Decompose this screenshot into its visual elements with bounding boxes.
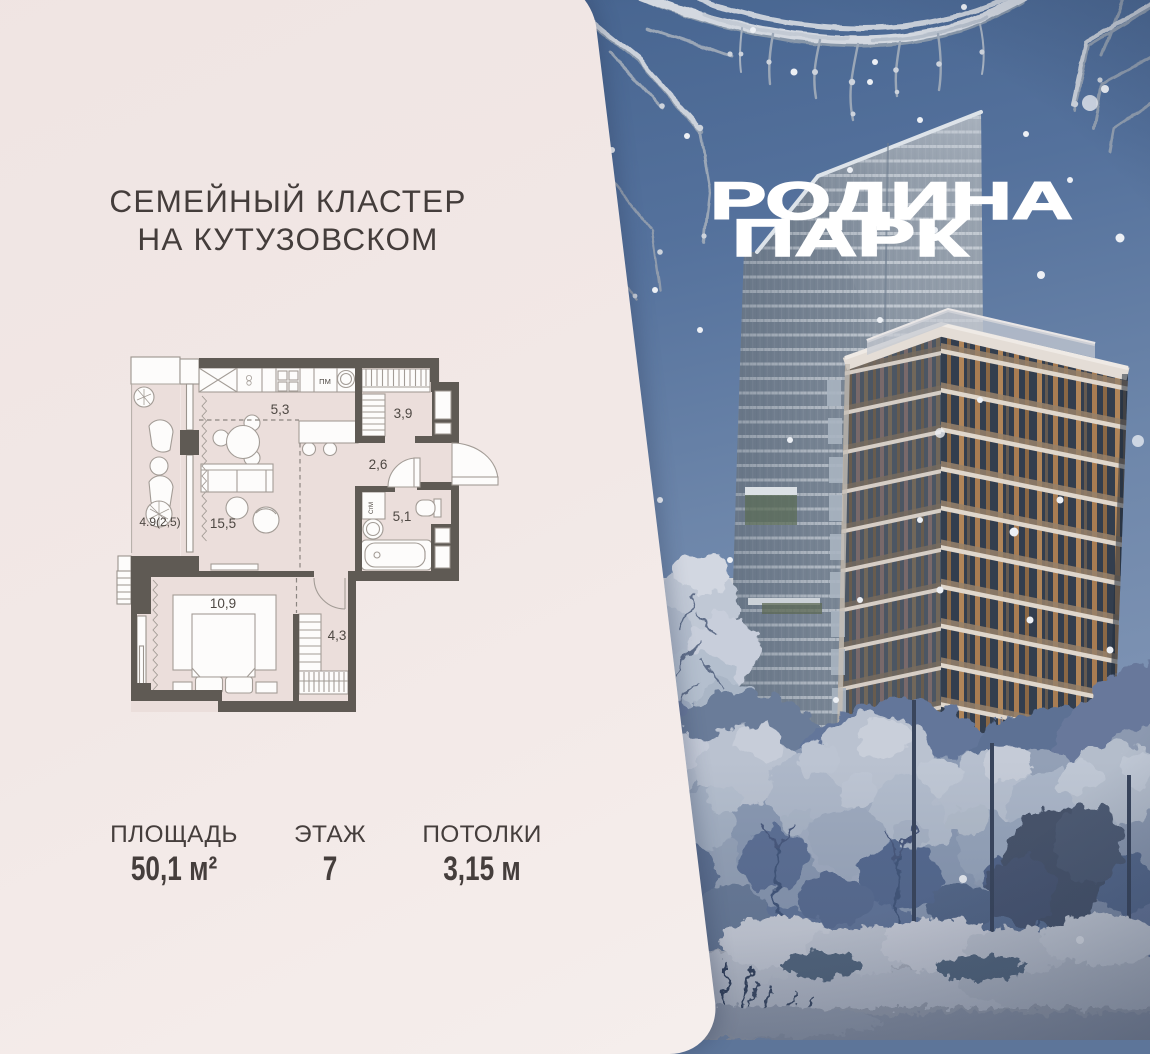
svg-text:10,9: 10,9 xyxy=(210,596,236,611)
svg-text:2,6: 2,6 xyxy=(369,457,388,472)
svg-text:СтМ: СтМ xyxy=(369,502,375,514)
svg-text:ПМ: ПМ xyxy=(319,377,331,386)
svg-text:5,3: 5,3 xyxy=(271,402,290,417)
svg-text:15,5: 15,5 xyxy=(210,516,236,531)
svg-text:3,9: 3,9 xyxy=(394,406,413,421)
svg-text:5,1: 5,1 xyxy=(393,509,412,524)
svg-text:4.9(2,5): 4.9(2,5) xyxy=(139,515,180,529)
svg-text:4,3: 4,3 xyxy=(328,628,347,643)
